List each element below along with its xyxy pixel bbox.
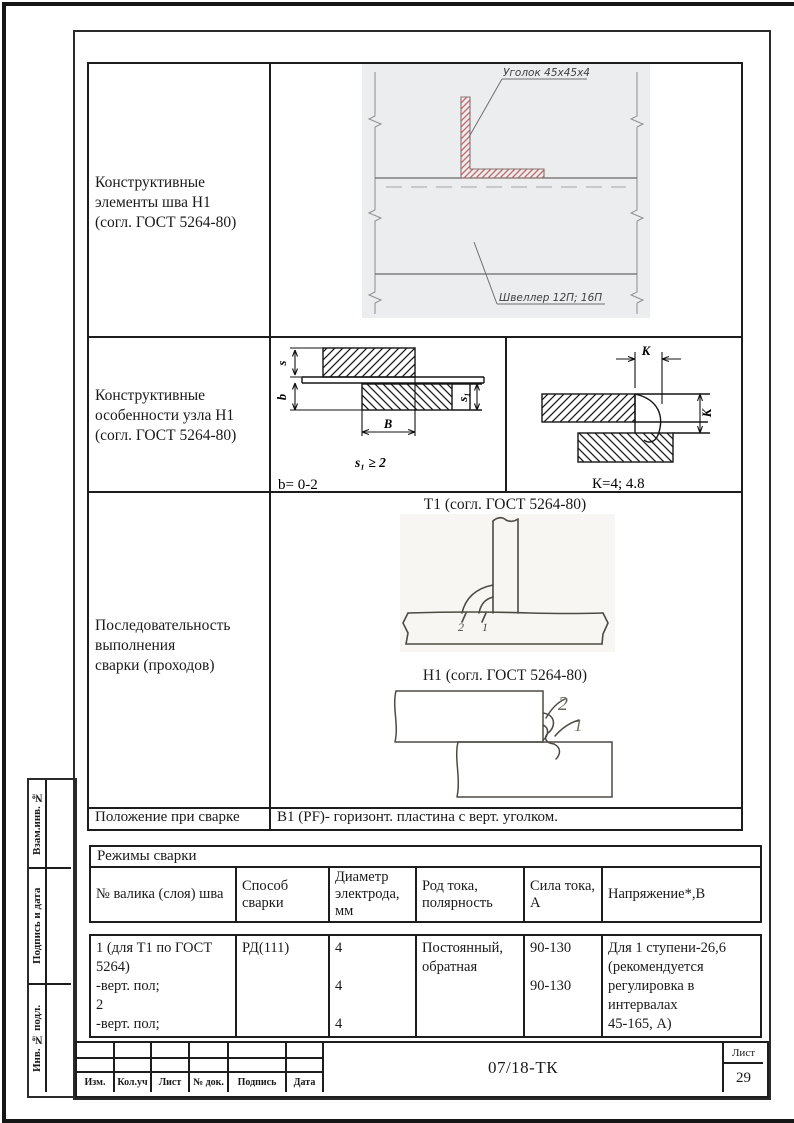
modes-cell-current-kind: Постоянный, обратная [416,935,524,1037]
modes-cell-seam: 1 (для Т1 по ГОСТ 5264) -верт. пол; 2 -в… [90,935,236,1037]
angle-on-channel-drawing: Уголок 45х45х4 Швеллер 12П; 16П [362,64,650,318]
modes-header-voltage: Напряжение*,В [602,867,761,922]
modes-table-header: Режимы сварки № валика (слоя) шва Способ… [89,845,762,923]
h1-pass2-label: 2 [558,693,568,715]
row3-label: Последовательность выполнения сварки (пр… [95,616,280,676]
tb-label-izm: Изм. [77,1073,113,1092]
modes-cell-current: 90-130 90-130 [524,935,602,1037]
h1-pass1-label: 1 [574,716,583,735]
K-note: К=4; 4.8 [592,476,645,492]
modes-title: Режимы сварки [90,846,761,867]
dim-s-label: s [277,360,289,366]
modes-cell-voltage: Для 1 ступени-26,6 (рекомендуется регули… [602,935,761,1037]
h1-sequence-sketch: 2 1 [388,687,620,800]
node-dimensions-drawing: s b В s₁ s₁ ≥ 2 b= 0-2 [277,342,507,492]
tb-label-list: Лист [152,1073,188,1092]
b-note: b= 0-2 [278,477,318,492]
modes-table-data: 1 (для Т1 по ГОСТ 5264) -верт. пол; 2 -в… [89,934,762,1038]
tb-h1 [77,1057,324,1059]
row4-label: Положение при сварке [95,809,240,826]
dim-B-label: В [383,417,392,431]
side-stamp-vline [45,780,47,1092]
t1-pass1-label: 1 [482,620,488,634]
angle-callout: Уголок 45х45х4 [503,67,590,79]
tb-label-podpis: Подпись [229,1073,285,1092]
s1-formula: s₁ ≥ 2 [354,455,386,470]
tb-label-koluch: Кол.уч [115,1073,150,1092]
t1-figure-title: Т1 (согл. ГОСТ 5264-80) [300,496,710,514]
channel-callout: Швеллер 12П; 16П [499,292,602,304]
dim-K-top-label: К [641,344,652,358]
spec-table-right [741,62,743,831]
t1-pass2-label: 2 [458,620,464,634]
modes-cell-method: РД(111) [236,935,329,1037]
row1-label: Конструктивные элементы шва Н1 (согл. ГО… [95,173,270,233]
h1-figure-title: Н1 (согл. ГОСТ 5264-80) [300,667,710,685]
row2-label: Конструктивные особенности узла Н1 (согл… [95,386,280,446]
sheet-page: Взам.инв. № Подпись и дата Инв. № подл. … [0,0,794,1123]
side-stamp: Взам.инв. № Подпись и дата Инв. № подл. [27,778,77,1098]
stamp-label-inv: Инв. № подл. [29,985,45,1092]
modes-header-current-kind: Род тока, полярность [416,867,524,922]
spec-table-bottom [87,829,743,831]
dim-s1-label: s₁ [456,392,470,402]
title-block: Изм. Кол.уч Лист № док. Подпись Дата 07/… [75,1041,769,1098]
weld-leg-drawing: К К К=4; 4.8 [512,342,740,492]
stamp-label-podpis-data: Подпись и дата [29,869,45,983]
tb-label-ndok: № док. [190,1073,227,1092]
modes-cell-diameter: 4 4 4 [329,935,416,1037]
sheet-label: Лист [724,1043,763,1062]
dim-b-label: b [277,394,289,400]
modes-header-current: Сила тока, А [524,867,602,922]
tb-label-data: Дата [287,1073,322,1092]
modes-header-method: Способ сварки [236,867,329,922]
spec-row1-divider [87,336,743,338]
document-number: 07/18-ТК [324,1043,722,1092]
spec-table-left [87,62,89,831]
stamp-label-vzam: Взам.инв. № [29,780,45,867]
row4-value: В1 (PF)- горизонт. пластина с верт. угол… [277,809,558,826]
t1-sequence-sketch: 2 1 [400,514,615,652]
modes-header-seam: № валика (слоя) шва [90,867,236,922]
modes-header-diameter: Диаметр электрода, мм [329,867,416,922]
dim-K-right-label: К [700,407,714,418]
sheet-number: 29 [724,1064,763,1092]
